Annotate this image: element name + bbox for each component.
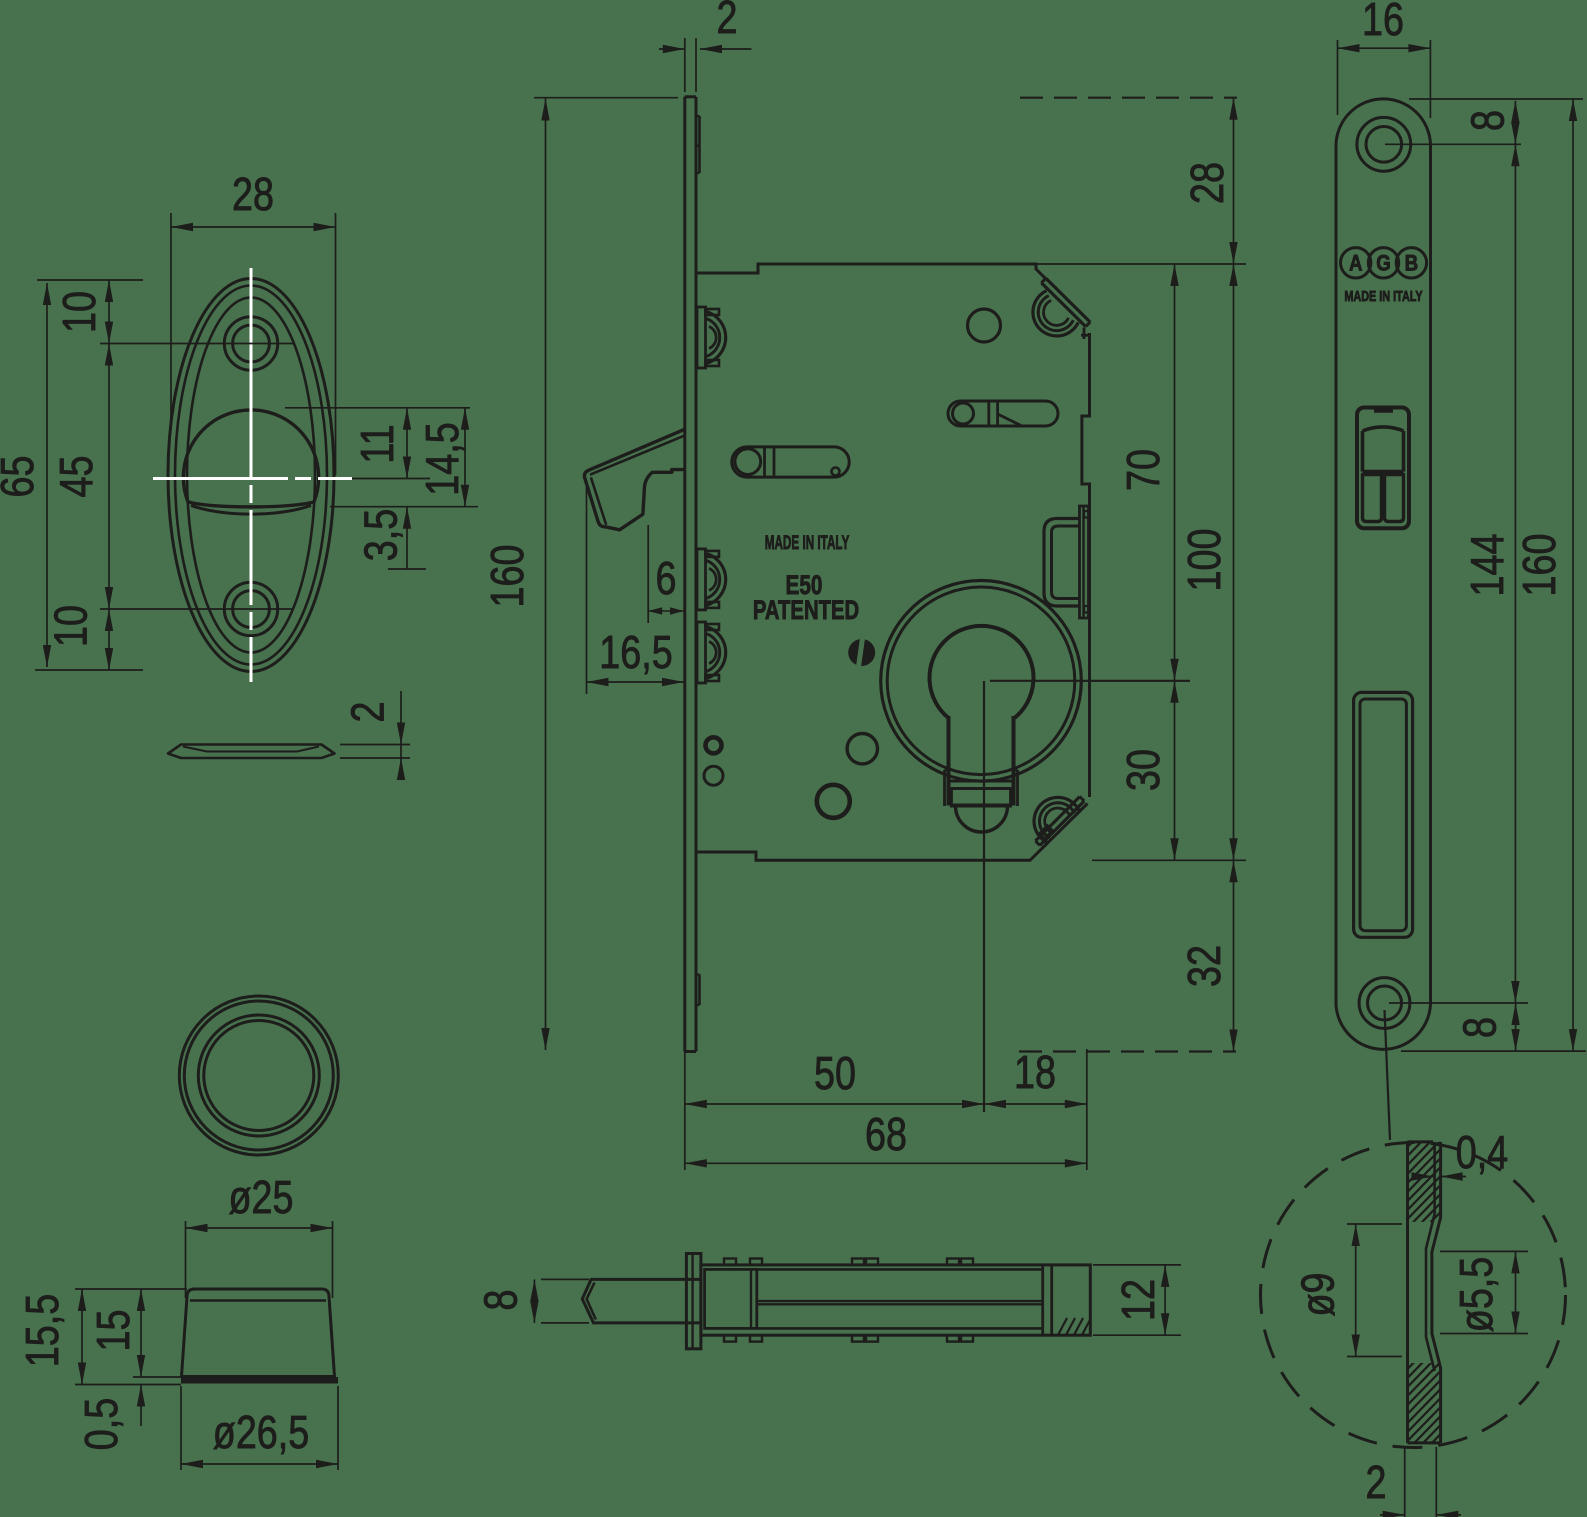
svg-text:30: 30 (1117, 749, 1168, 791)
svg-text:ø9: ø9 (1292, 1272, 1343, 1316)
svg-text:10: 10 (53, 291, 104, 333)
svg-text:ø26,5: ø26,5 (213, 1406, 309, 1457)
svg-text:28: 28 (1181, 162, 1232, 204)
svg-text:100: 100 (1178, 529, 1229, 592)
svg-text:15,5: 15,5 (16, 1294, 67, 1367)
svg-text:B: B (1405, 252, 1419, 276)
svg-text:0,4: 0,4 (1456, 1126, 1508, 1177)
svg-text:8: 8 (475, 1290, 526, 1311)
svg-text:32: 32 (1178, 945, 1229, 987)
svg-text:PATENTED: PATENTED (753, 596, 859, 625)
svg-text:16,5: 16,5 (599, 626, 672, 677)
svg-text:18: 18 (1014, 1046, 1056, 1097)
svg-text:70: 70 (1117, 449, 1168, 491)
svg-text:50: 50 (814, 1047, 856, 1098)
svg-text:12: 12 (1112, 1279, 1163, 1321)
svg-text:ø5,5: ø5,5 (1450, 1257, 1501, 1332)
svg-text:14,5: 14,5 (416, 422, 467, 495)
svg-text:2: 2 (1366, 1456, 1387, 1507)
svg-text:65: 65 (0, 456, 43, 498)
svg-text:G: G (1376, 252, 1391, 276)
svg-text:160: 160 (1513, 534, 1564, 597)
svg-text:MADE IN ITALY: MADE IN ITALY (1344, 288, 1422, 304)
svg-text:MADE IN ITALY: MADE IN ITALY (765, 532, 850, 553)
svg-text:45: 45 (50, 456, 101, 498)
svg-text:15: 15 (87, 1310, 138, 1352)
svg-text:160: 160 (481, 545, 532, 608)
svg-text:3,5: 3,5 (355, 509, 406, 561)
svg-text:8: 8 (1454, 1017, 1505, 1038)
svg-text:ø25: ø25 (229, 1171, 294, 1222)
svg-text:A: A (1349, 252, 1363, 276)
svg-text:2: 2 (342, 702, 393, 723)
svg-text:6: 6 (656, 552, 677, 603)
svg-text:16: 16 (1362, 0, 1404, 45)
svg-text:8: 8 (1462, 110, 1513, 131)
svg-text:2: 2 (717, 0, 738, 43)
svg-text:11: 11 (351, 424, 402, 463)
svg-text:28: 28 (232, 168, 274, 219)
svg-text:10: 10 (45, 605, 96, 647)
svg-text:144: 144 (1461, 534, 1512, 597)
svg-text:68: 68 (865, 1108, 907, 1159)
svg-text:0,5: 0,5 (75, 1398, 126, 1450)
